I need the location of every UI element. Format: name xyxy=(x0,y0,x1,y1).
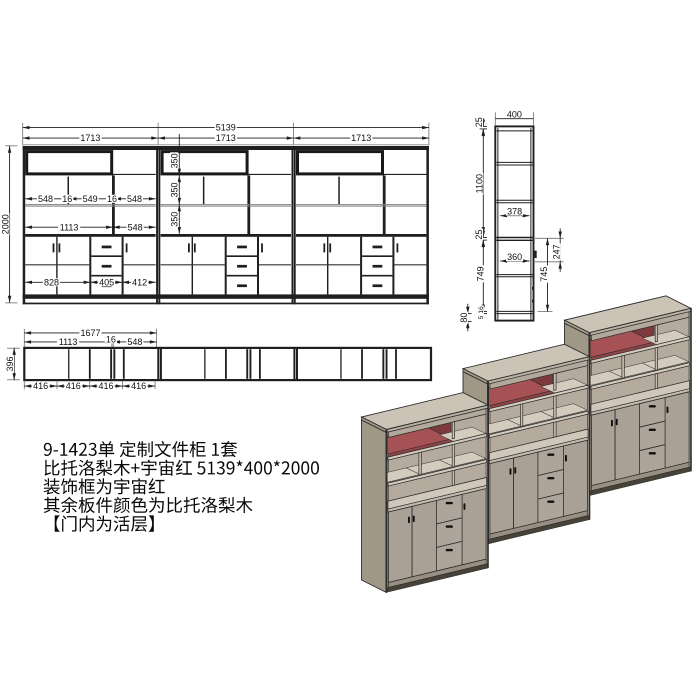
svg-text:548: 548 xyxy=(127,337,142,347)
svg-text:25: 25 xyxy=(474,230,484,240)
svg-text:1113: 1113 xyxy=(59,337,78,347)
svg-text:749: 749 xyxy=(475,266,485,281)
svg-text:416: 416 xyxy=(98,381,113,391)
svg-text:16: 16 xyxy=(478,306,485,314)
svg-text:405: 405 xyxy=(99,277,114,287)
svg-text:828: 828 xyxy=(44,277,59,287)
svg-text:416: 416 xyxy=(131,381,146,391)
svg-text:25: 25 xyxy=(474,117,484,127)
svg-text:247: 247 xyxy=(552,244,562,259)
svg-text:548: 548 xyxy=(128,222,143,232)
svg-text:80: 80 xyxy=(459,313,469,323)
svg-text:5139: 5139 xyxy=(216,123,236,133)
svg-text:1113: 1113 xyxy=(60,222,79,232)
svg-text:400: 400 xyxy=(507,110,522,120)
svg-text:16: 16 xyxy=(106,334,116,344)
svg-text:350: 350 xyxy=(169,153,179,168)
svg-text:1100: 1100 xyxy=(474,174,484,193)
svg-text:1677: 1677 xyxy=(80,328,100,338)
svg-text:360: 360 xyxy=(507,252,522,262)
svg-text:548: 548 xyxy=(127,194,142,204)
svg-text:412: 412 xyxy=(132,277,147,287)
svg-text:2000: 2000 xyxy=(1,214,11,234)
svg-text:1713: 1713 xyxy=(351,133,371,143)
svg-text:416: 416 xyxy=(66,381,81,391)
svg-text:549: 549 xyxy=(83,194,98,204)
svg-text:416: 416 xyxy=(33,381,48,391)
svg-text:745: 745 xyxy=(539,267,549,282)
svg-text:350: 350 xyxy=(169,212,179,227)
svg-text:350: 350 xyxy=(169,182,179,197)
svg-text:16: 16 xyxy=(62,194,72,204)
svg-text:548: 548 xyxy=(38,194,53,204)
svg-text:16: 16 xyxy=(107,194,117,204)
svg-text:5: 5 xyxy=(478,315,485,319)
svg-text:1713: 1713 xyxy=(80,133,100,143)
svg-text:378: 378 xyxy=(507,207,522,217)
svg-text:396: 396 xyxy=(5,356,15,371)
svg-text:1713: 1713 xyxy=(216,133,236,143)
